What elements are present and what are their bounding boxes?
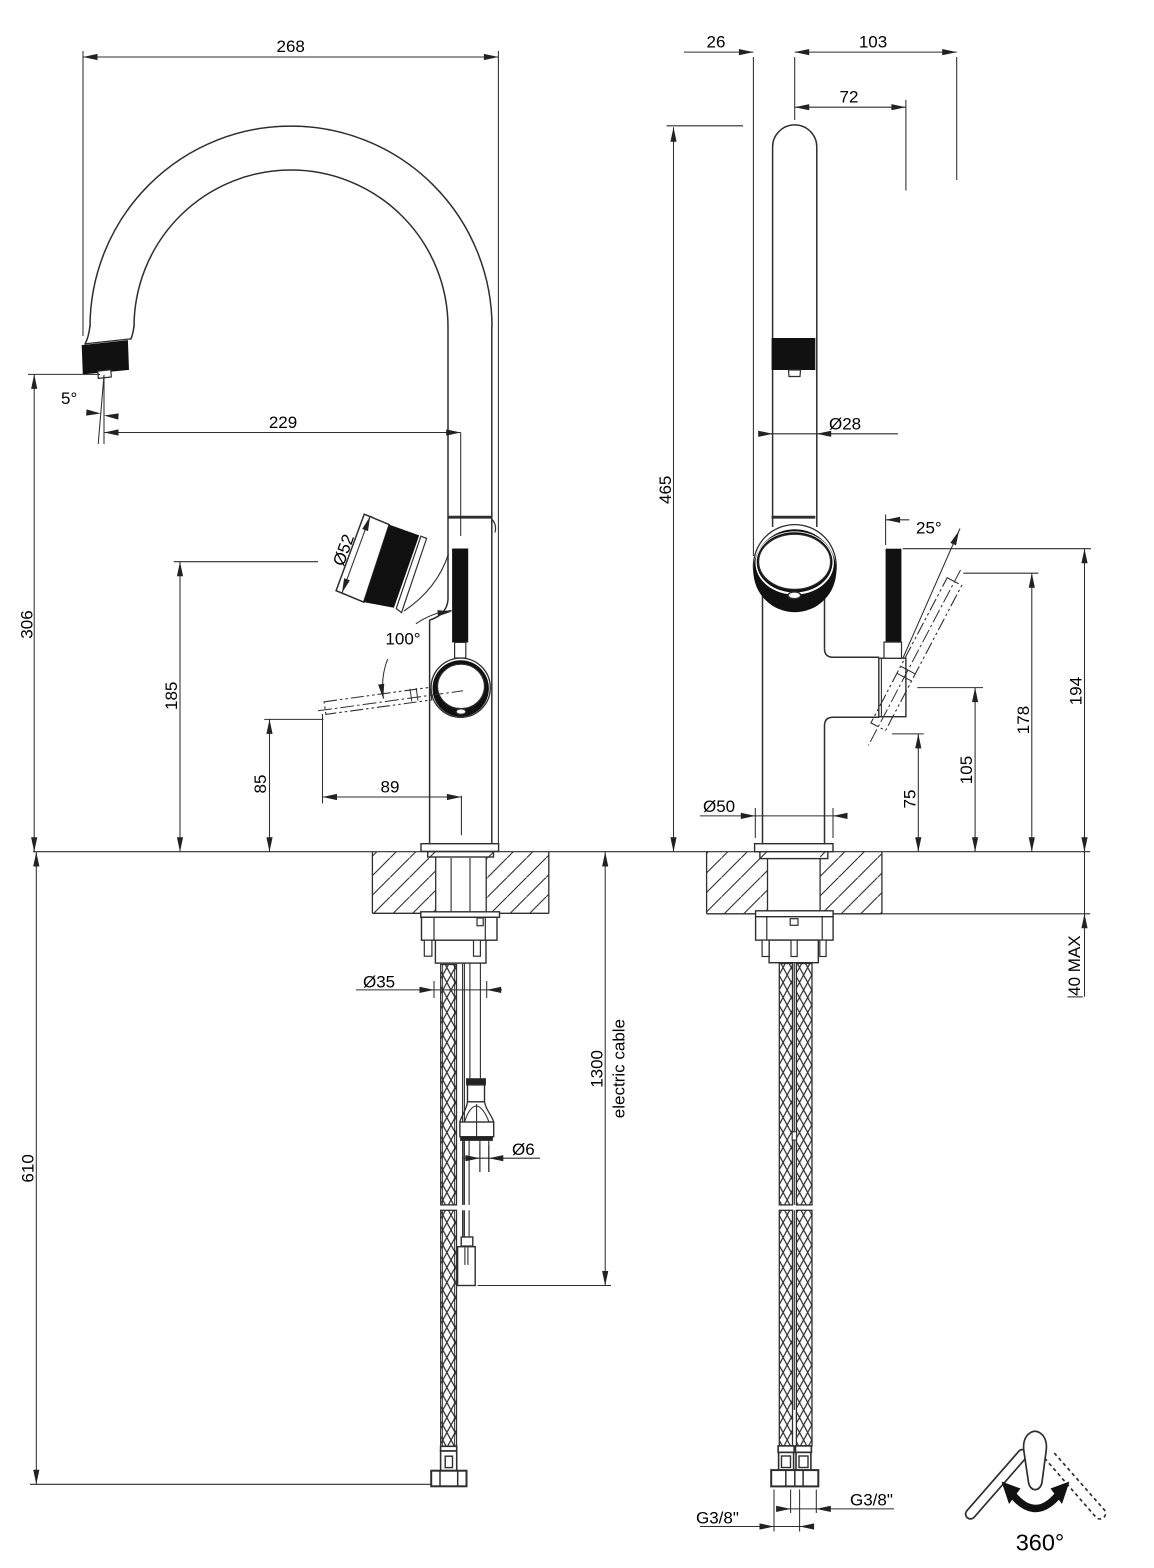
- svg-text:194: 194: [1067, 677, 1086, 705]
- svg-text:229: 229: [269, 413, 297, 432]
- svg-text:Ø6: Ø6: [512, 1140, 535, 1159]
- svg-text:105: 105: [957, 756, 976, 784]
- svg-text:268: 268: [277, 37, 305, 56]
- svg-text:360°: 360°: [1016, 1530, 1065, 1556]
- svg-text:306: 306: [18, 610, 37, 638]
- svg-text:25°: 25°: [916, 519, 942, 538]
- svg-text:Ø50: Ø50: [703, 797, 735, 816]
- svg-text:electric cable: electric cable: [610, 1019, 629, 1118]
- svg-text:85: 85: [251, 775, 270, 794]
- svg-text:1300: 1300: [587, 1050, 606, 1088]
- svg-text:40 MAX: 40 MAX: [1065, 935, 1084, 995]
- svg-text:26: 26: [707, 33, 726, 52]
- svg-text:185: 185: [162, 682, 181, 710]
- svg-text:89: 89: [381, 778, 400, 797]
- svg-text:Ø35: Ø35: [363, 973, 395, 992]
- svg-text:72: 72: [840, 88, 859, 107]
- svg-text:610: 610: [18, 1154, 37, 1182]
- svg-text:100°: 100°: [385, 630, 420, 649]
- svg-text:Ø28: Ø28: [829, 415, 861, 434]
- svg-text:G3/8": G3/8": [850, 1490, 893, 1509]
- svg-text:178: 178: [1014, 706, 1033, 734]
- svg-text:103: 103: [859, 33, 887, 52]
- svg-text:465: 465: [656, 476, 675, 504]
- svg-text:75: 75: [900, 790, 919, 809]
- svg-text:G3/8": G3/8": [696, 1509, 739, 1528]
- svg-text:5°: 5°: [61, 389, 77, 408]
